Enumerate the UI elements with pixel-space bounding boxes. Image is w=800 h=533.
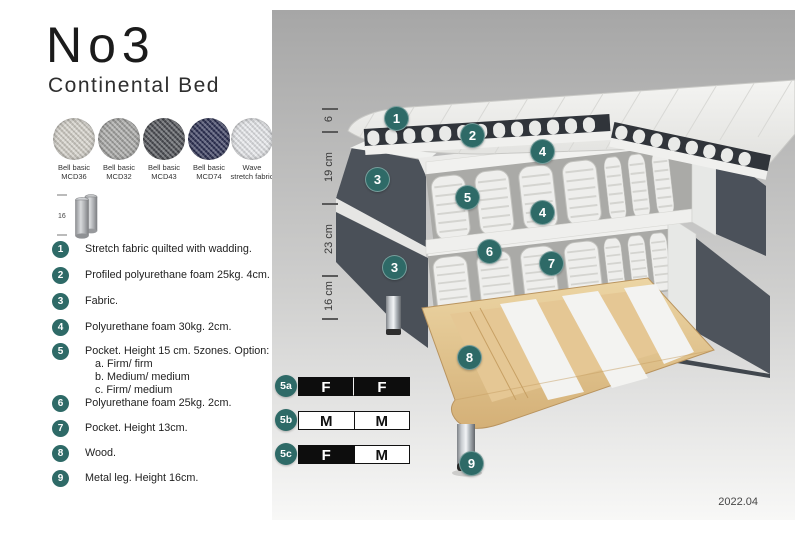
callout-3b: 3 <box>382 255 407 280</box>
bed-cutaway-illustration <box>272 10 795 520</box>
legend-number-badge: 7 <box>52 420 69 437</box>
legend-text: Profiled polyurethane foam 25kg. 4cm. <box>85 267 275 282</box>
swatch-name: Bell basic <box>148 163 180 172</box>
firmness-cell: M <box>298 411 355 430</box>
callout-3a: 3 <box>365 167 390 192</box>
product-spec-sheet: No3 Continental Bed Bell basic MCD36 Bel… <box>0 0 800 533</box>
legend-item-3: 3 Fabric. <box>52 293 275 310</box>
firmness-cell: F <box>354 377 410 396</box>
callout-6: 6 <box>477 239 502 264</box>
swatch-code: MCD74 <box>196 172 221 181</box>
legend-item-7: 7 Pocket. Height 13cm. <box>52 420 275 437</box>
swatch-name: Bell basic <box>103 163 135 172</box>
fabric-swatch-mcd43: Bell basic MCD43 <box>142 118 186 182</box>
callout-4b: 4 <box>530 200 555 225</box>
callout-9: 9 <box>459 451 484 476</box>
legend-item-8: 8 Wood. <box>52 445 275 462</box>
fabric-swatch-icon <box>53 118 95 160</box>
version-label: 2022.04 <box>696 496 758 508</box>
callout-2: 2 <box>460 123 485 148</box>
legend-text: Pocket. Height 15 cm. 5zones. Option: a.… <box>85 343 275 397</box>
callout-5: 5 <box>455 185 480 210</box>
firmness-row-5a: F F <box>298 377 410 396</box>
legend-text: Metal leg. Height 16cm. <box>85 470 275 485</box>
option-badge-5a: 5a <box>275 375 297 397</box>
firmness-row-5b: M M <box>298 411 410 430</box>
callout-4a: 4 <box>530 139 555 164</box>
metal-leg-icon: 16 <box>52 188 110 245</box>
fabric-swatch-mcd36: Bell basic MCD36 <box>52 118 96 182</box>
fabric-swatch-wave: Wave stretch fabric <box>230 118 274 182</box>
legend-option-a: a. Firm/ firm <box>95 358 275 371</box>
legend-item-2: 2 Profiled polyurethane foam 25kg. 4cm. <box>52 267 275 284</box>
legend-number-badge: 9 <box>52 470 69 487</box>
firmness-cell: M <box>355 445 411 464</box>
legend-number-badge: 5 <box>52 343 69 360</box>
legend-item-4: 4 Polyurethane foam 30kg. 2cm. <box>52 319 275 336</box>
legend-number-badge: 2 <box>52 267 69 284</box>
legend-item-5: 5 Pocket. Height 15 cm. 5zones. Option: … <box>52 343 275 397</box>
swatch-code: MCD32 <box>106 172 131 181</box>
leg-height-label: 16 <box>58 213 66 220</box>
swatch-name: Bell basic <box>58 163 90 172</box>
legend-number-badge: 6 <box>52 395 69 412</box>
legend-number-badge: 3 <box>52 293 69 310</box>
legend-item-6: 6 Polyurethane foam 25kg. 2cm. <box>52 395 275 412</box>
fabric-swatch-icon <box>98 118 140 160</box>
legend-text: Pocket. Height 13cm. <box>85 420 275 435</box>
measure-label-23cm: 23 cm <box>323 209 337 269</box>
legend-number-badge: 8 <box>52 445 69 462</box>
swatch-code: stretch fabric <box>231 172 274 181</box>
fabric-swatch-icon <box>231 118 273 160</box>
legend-text: Wood. <box>85 445 275 460</box>
page-title: No3 <box>46 16 156 74</box>
legend-text: Stretch fabric quilted with wadding. <box>85 241 275 256</box>
callout-1: 1 <box>384 106 409 131</box>
legend-number-badge: 4 <box>52 319 69 336</box>
swatch-code: MCD36 <box>61 172 86 181</box>
legend-text-main: Pocket. Height 15 cm. 5zones. Option: <box>85 345 269 357</box>
firmness-cell: M <box>355 411 411 430</box>
firmness-cell: F <box>298 377 354 396</box>
legend-option-b: b. Medium/ medium <box>95 371 275 384</box>
option-badge-5b: 5b <box>275 409 297 431</box>
fabric-swatch-mcd32: Bell basic MCD32 <box>97 118 141 182</box>
swatch-name: Bell basic <box>193 163 225 172</box>
firmness-cell: F <box>298 445 355 464</box>
legend-text: Polyurethane foam 30kg. 2cm. <box>85 319 275 334</box>
page-subtitle: Continental Bed <box>48 74 220 98</box>
firmness-row-5c: F M <box>298 445 410 464</box>
swatch-name: Wave <box>243 163 262 172</box>
measure-tick <box>322 203 338 205</box>
measure-label-19cm: 19 cm <box>323 137 337 197</box>
legend-item-1: 1 Stretch fabric quilted with wadding. <box>52 241 275 258</box>
fabric-swatch-mcd74: Bell basic MCD74 <box>187 118 231 182</box>
fabric-swatch-icon <box>143 118 185 160</box>
callout-7: 7 <box>539 251 564 276</box>
legend-number-badge: 1 <box>52 241 69 258</box>
swatch-code: MCD43 <box>151 172 176 181</box>
measure-label-16cm: 16 cm <box>323 266 337 326</box>
fabric-swatch-icon <box>188 118 230 160</box>
callout-8: 8 <box>457 345 482 370</box>
legend-text: Fabric. <box>85 293 275 308</box>
option-badge-5c: 5c <box>275 443 297 465</box>
legend-text: Polyurethane foam 25kg. 2cm. <box>85 395 275 410</box>
bed-cutaway-panel: 6 19 cm 23 cm 16 cm 1 2 4 3 5 4 6 7 3 8 … <box>272 10 795 520</box>
legend-item-9: 9 Metal leg. Height 16cm. <box>52 470 275 487</box>
